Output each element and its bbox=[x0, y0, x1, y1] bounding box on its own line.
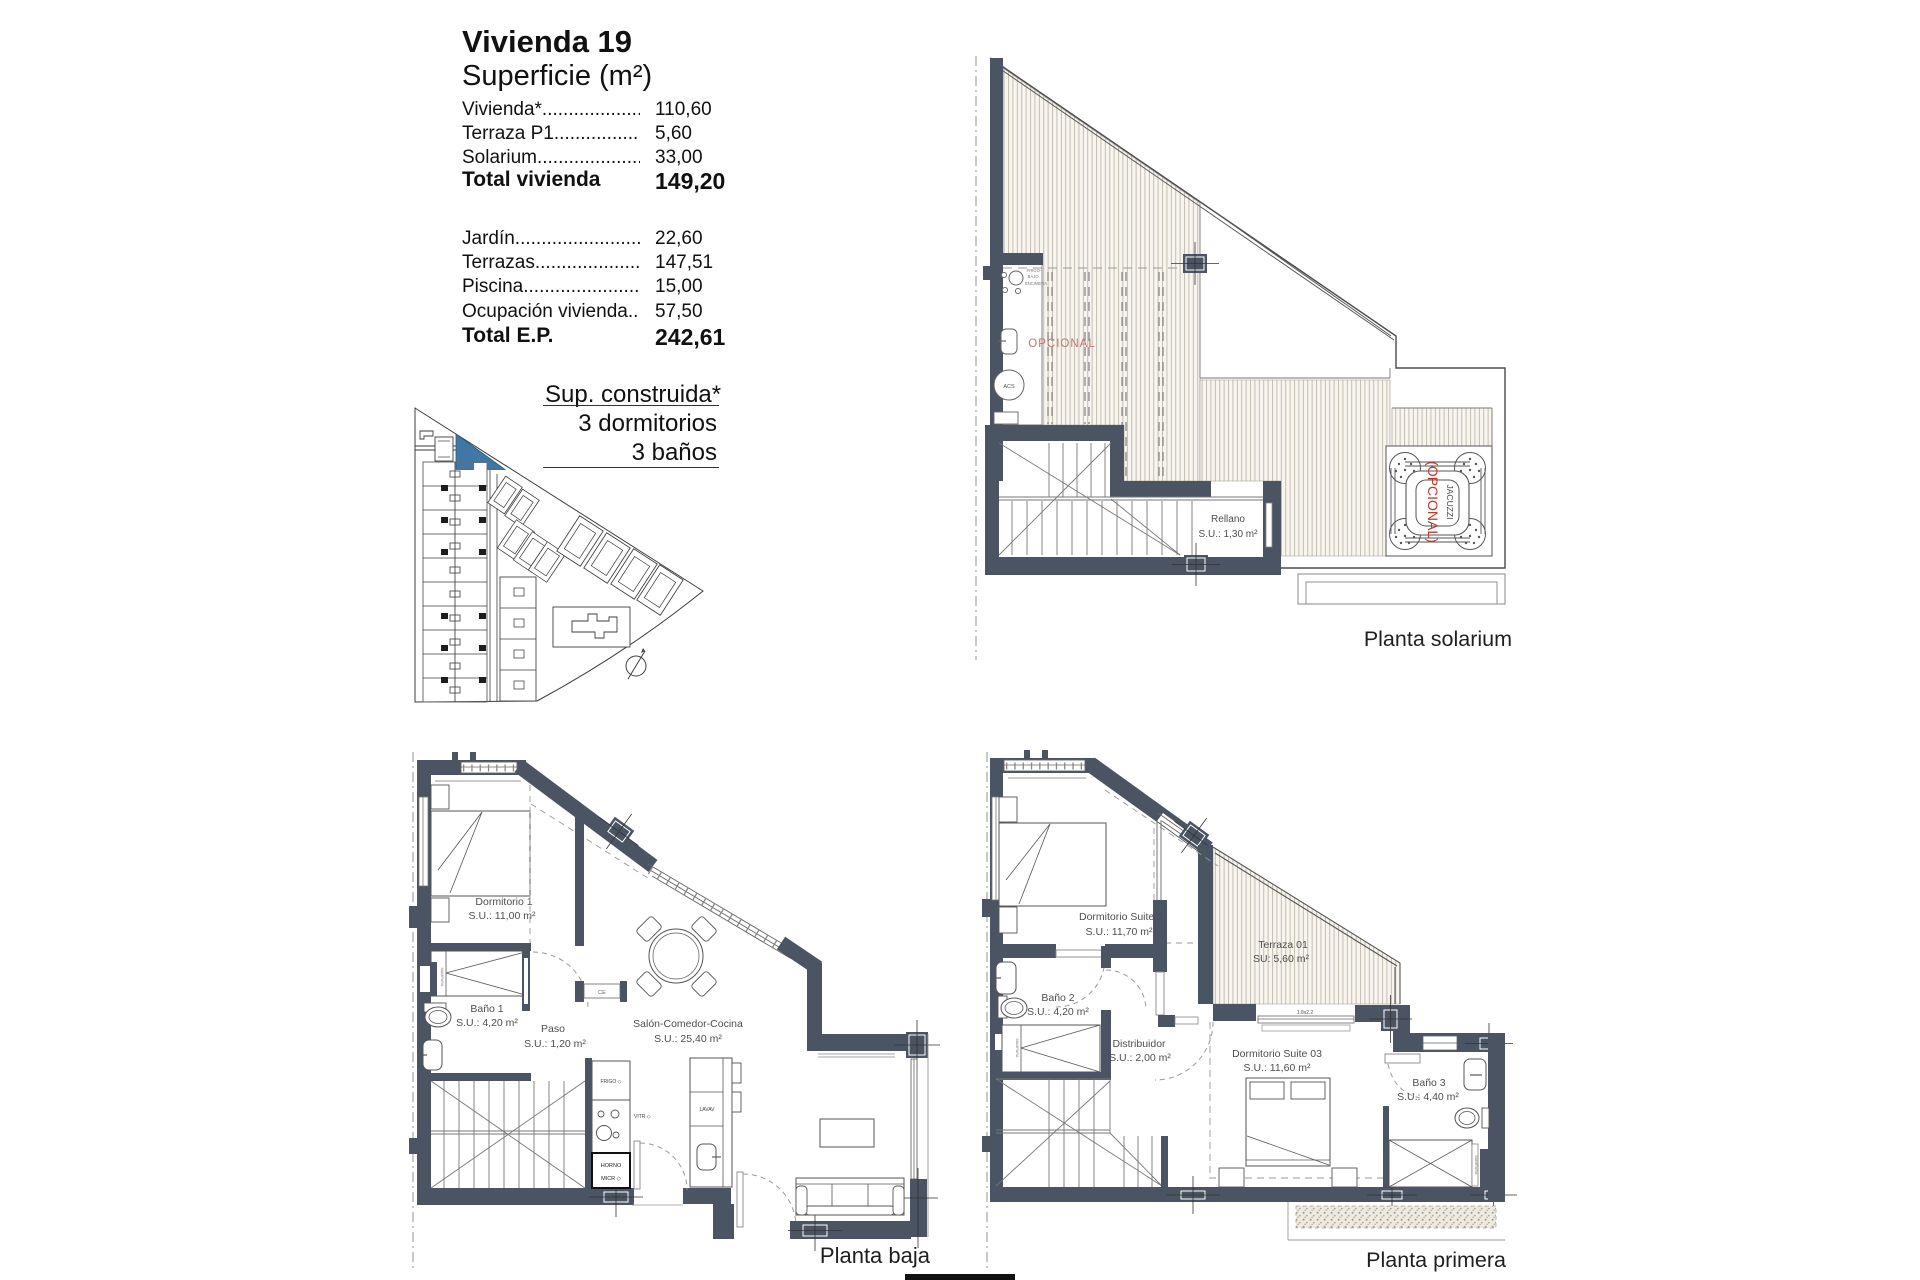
svg-text:Rellano: Rellano bbox=[1211, 514, 1245, 525]
svg-text:LAVAV: LAVAV bbox=[699, 1107, 715, 1113]
svg-text:1.8x2.2: 1.8x2.2 bbox=[1297, 1010, 1314, 1016]
svg-text:Terraza 01: Terraza 01 bbox=[1258, 939, 1308, 951]
svg-text:Salón-Comedor-Cocina: Salón-Comedor-Cocina bbox=[633, 1018, 743, 1030]
svg-text:CE: CE bbox=[598, 990, 606, 996]
svg-text:Planta primera: Planta primera bbox=[1366, 1248, 1506, 1272]
svg-text:SU: 5,60 m²: SU: 5,60 m² bbox=[1253, 953, 1310, 965]
svg-text:S.U.: 4,20 m²: S.U.: 4,20 m² bbox=[456, 1017, 518, 1029]
svg-text:Dormitorio Suite 2: Dormitorio Suite 2 bbox=[1079, 911, 1163, 923]
svg-text:Dormitorio 1: Dormitorio 1 bbox=[475, 896, 532, 908]
svg-text:Baño 2: Baño 2 bbox=[1041, 992, 1074, 1004]
svg-text:Baño 1: Baño 1 bbox=[470, 1003, 503, 1015]
svg-text:HORNO: HORNO bbox=[601, 1163, 622, 1169]
svg-text:S.U.: 1,30 m²: S.U.: 1,30 m² bbox=[1199, 529, 1259, 540]
svg-text:MAMPARA: MAMPARA bbox=[1015, 1039, 1019, 1058]
svg-text:Planta baja: Planta baja bbox=[820, 1243, 931, 1268]
svg-text:VITR ◇: VITR ◇ bbox=[634, 1114, 651, 1120]
svg-text:MAMPARA: MAMPARA bbox=[1474, 1156, 1478, 1175]
svg-text:FRIGO ◇: FRIGO ◇ bbox=[600, 1079, 621, 1085]
svg-text:(OPCIONAL): (OPCIONAL) bbox=[1425, 461, 1441, 543]
svg-text:Dormitorio Suite 03: Dormitorio Suite 03 bbox=[1232, 1048, 1322, 1060]
svg-text:S.U.: 25,40 m²: S.U.: 25,40 m² bbox=[654, 1033, 722, 1045]
svg-text:BAJO: BAJO bbox=[1028, 274, 1040, 279]
svg-text:S.U.: 4,20 m²: S.U.: 4,20 m² bbox=[1027, 1006, 1089, 1018]
svg-text:Paso: Paso bbox=[541, 1023, 565, 1035]
svg-text:Baño 3: Baño 3 bbox=[1412, 1077, 1445, 1089]
svg-text:MAMPARA: MAMPARA bbox=[440, 968, 444, 987]
svg-text:S.U.: 1,20 m²: S.U.: 1,20 m² bbox=[524, 1038, 586, 1050]
svg-text:ACS: ACS bbox=[1003, 384, 1015, 390]
svg-text:S.U.: 2,00 m²: S.U.: 2,00 m² bbox=[1109, 1052, 1171, 1064]
svg-text:S.U.: 4,40 m²: S.U.: 4,40 m² bbox=[1397, 1091, 1459, 1103]
svg-text:ENCIMERA: ENCIMERA bbox=[1025, 281, 1047, 286]
svg-text:JACUZZI: JACUZZI bbox=[1445, 485, 1455, 520]
svg-text:FRIGO-: FRIGO- bbox=[1027, 268, 1042, 273]
svg-text:Planta solarium: Planta solarium bbox=[1364, 627, 1512, 651]
svg-text:Distribuidor: Distribuidor bbox=[1112, 1038, 1166, 1050]
svg-text:S.U.: 11,70 m²: S.U.: 11,70 m² bbox=[1086, 926, 1153, 938]
svg-text:S.U.: 11,60 m²: S.U.: 11,60 m² bbox=[1244, 1062, 1311, 1074]
svg-text:S.U.: 11,00 m²: S.U.: 11,00 m² bbox=[469, 910, 536, 922]
svg-text:MICR ◇: MICR ◇ bbox=[601, 1176, 622, 1182]
